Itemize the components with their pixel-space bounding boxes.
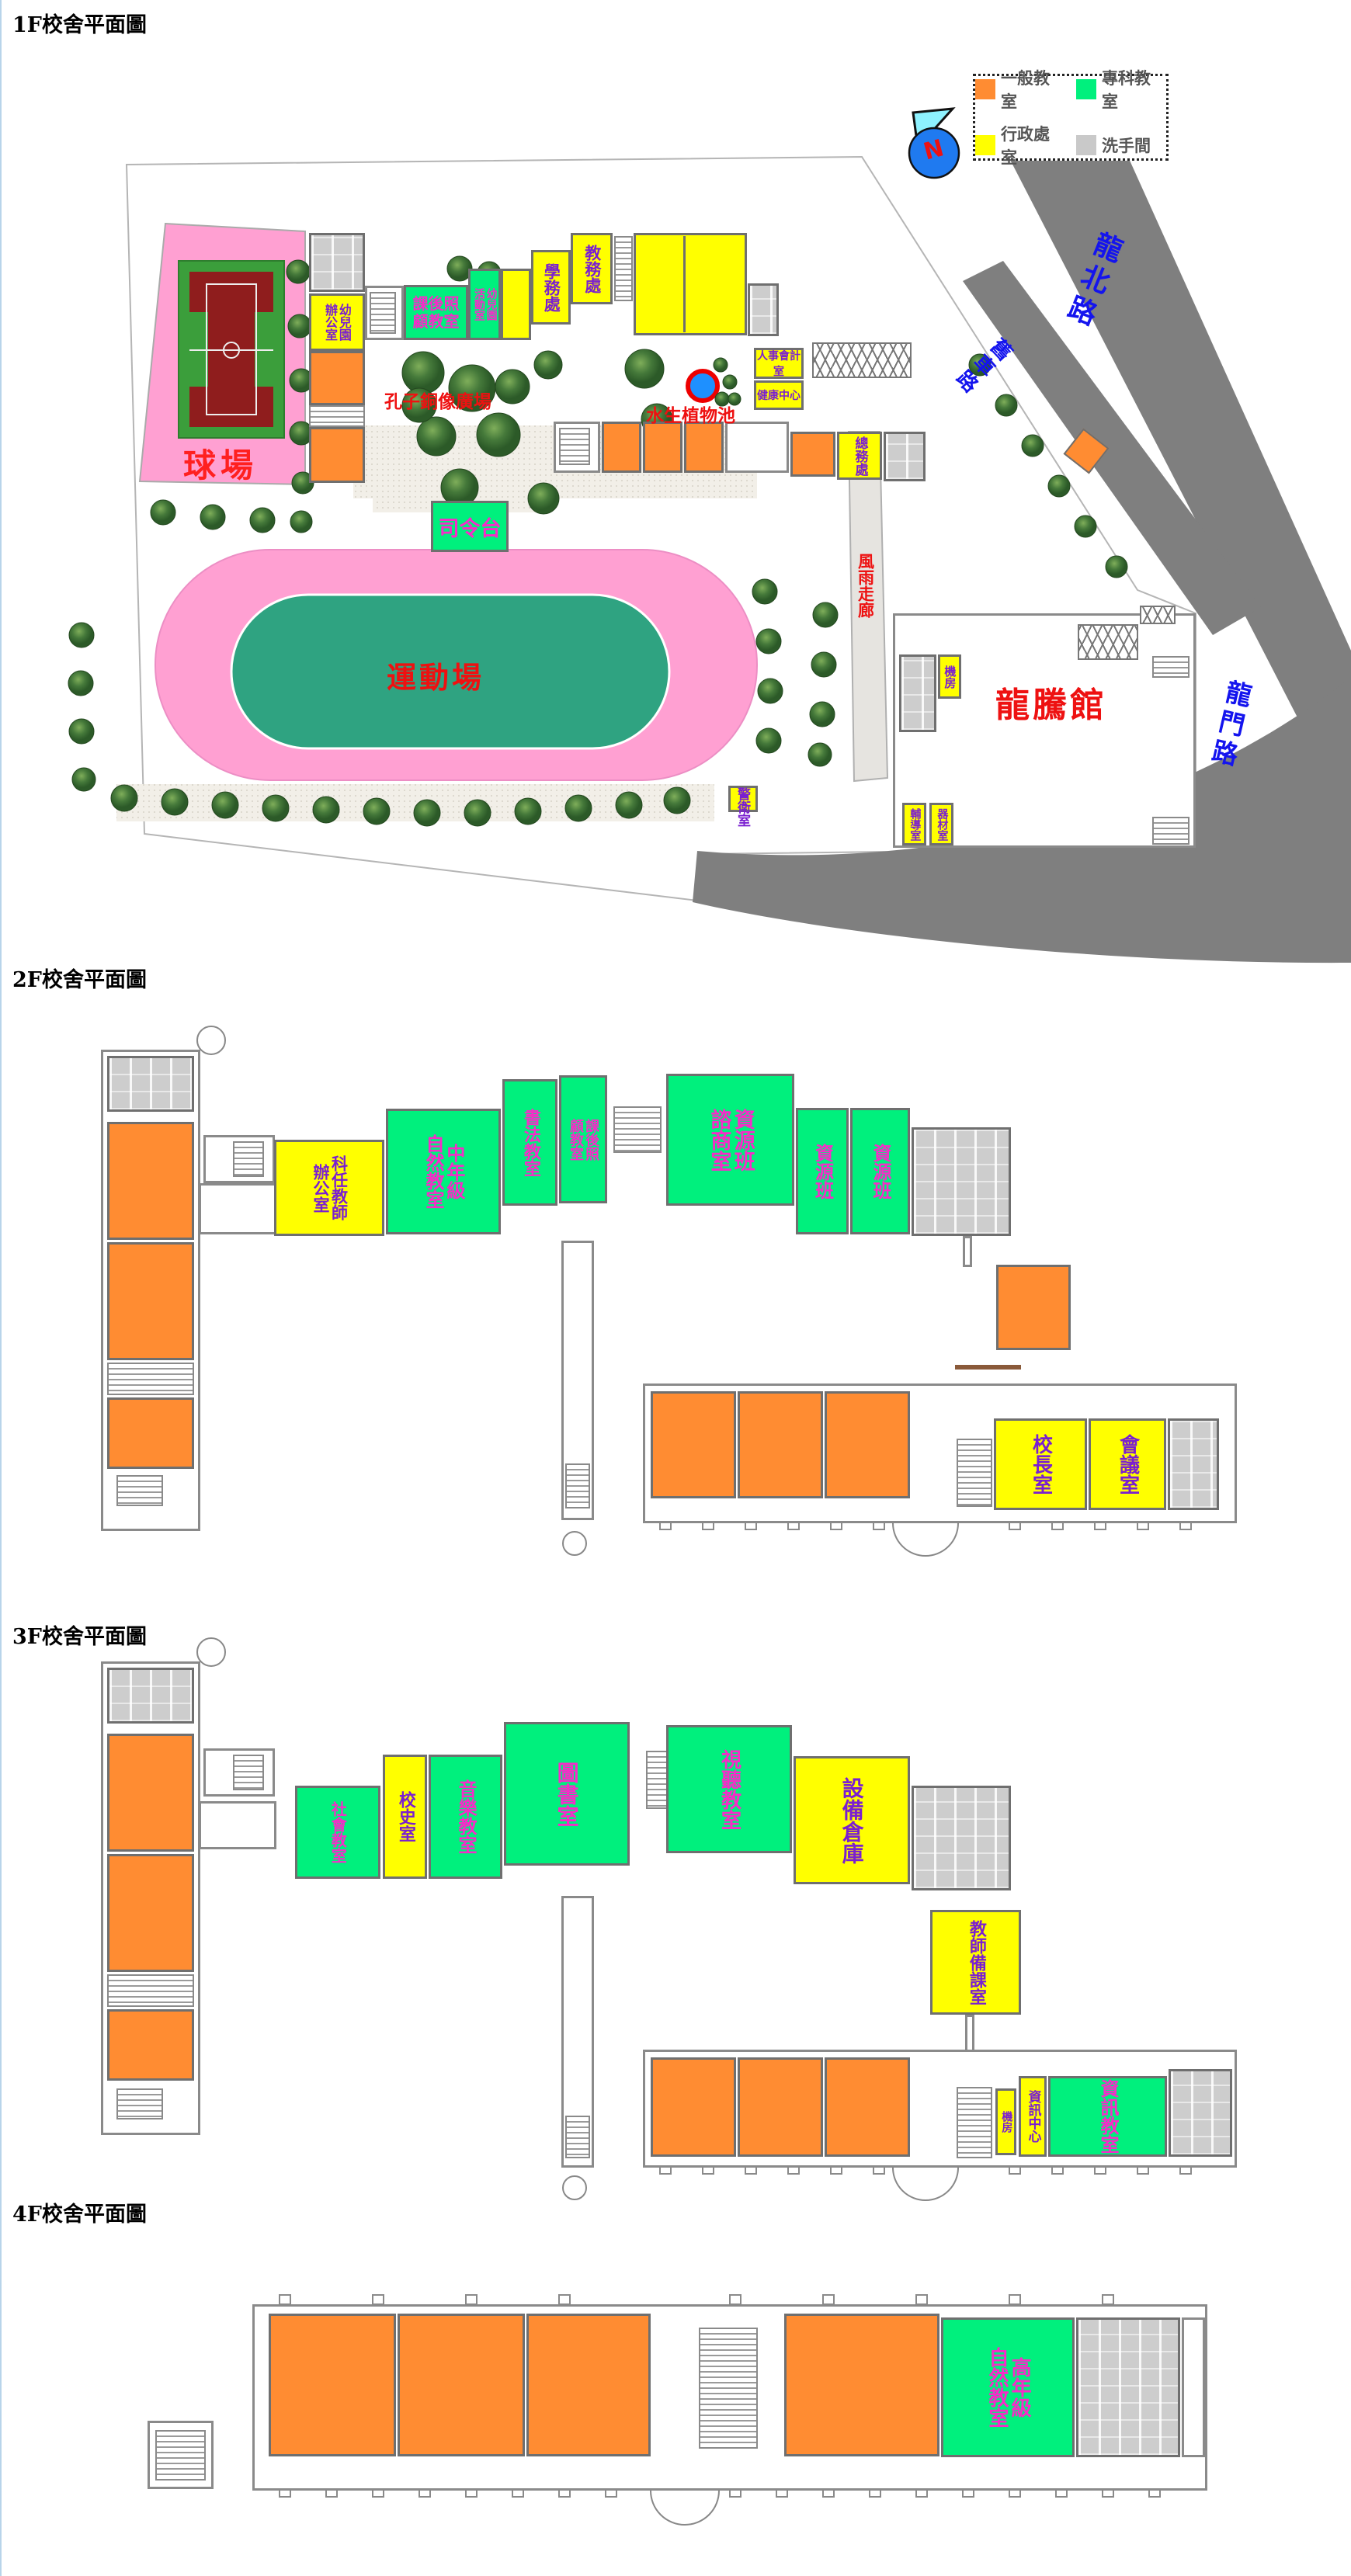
f1-classroom: [684, 422, 724, 473]
f1-kinder-activity-label: 幼兒園 活動室: [472, 288, 496, 321]
f1-bleachers-east: [812, 342, 912, 378]
stair-tower-2f: [197, 1026, 225, 1054]
f3-music-label: 音樂教室: [455, 1779, 476, 1854]
f3-classroom: [107, 2009, 194, 2081]
f2-classroom-east: [996, 1265, 1071, 1350]
f1-kindergarten-office-label: 幼兒園 辦公室: [323, 304, 351, 341]
f1-personnel-office: 人事會計室: [754, 348, 804, 379]
f1-gym-bleachers: [1078, 624, 1138, 660]
f1-health-center: 健康中心: [754, 380, 804, 410]
legend: 一般教室 專科教室 行政處室 洗手間: [973, 74, 1169, 161]
f1-south-stairs: [559, 428, 590, 465]
f1-gym-toilet: [899, 654, 936, 732]
legend-item-special: 專科教室: [1076, 66, 1166, 113]
f2-after-school-label: 課後照 顧教室: [568, 1119, 599, 1161]
f2-classroom: [738, 1391, 823, 1498]
f3-teacher-prep-label: 教師備課室: [966, 1920, 985, 2005]
f3-library-label: 圖書室: [554, 1762, 578, 1827]
f3-it-room-label: 資訊教室: [1097, 2079, 1118, 2154]
f3-it-room: 資訊教室: [1048, 2076, 1167, 2157]
f2-classroom: [107, 1242, 194, 1360]
f1-counseling-label: 輔導室: [908, 808, 921, 841]
floor3-title: 3F校舍平面圖: [12, 1620, 147, 1650]
f4-west-annex-stairs: [155, 2430, 206, 2481]
f2-classroom: [825, 1391, 910, 1498]
f1-after-school-label: 課後照 顧教室: [413, 295, 460, 331]
f2-resource-counsel-label: 資源班 諮商室: [707, 1109, 753, 1172]
f2-principal-label: 校長室: [1029, 1434, 1051, 1495]
entry-arc-4f: [651, 2491, 719, 2525]
f2-principal-office: 校長室: [994, 1418, 1087, 1510]
legend-label-restroom: 洗手間: [1102, 134, 1151, 157]
f2-after-school-room: 課後照 顧教室: [559, 1075, 607, 1203]
f2-west-connector: [199, 1183, 276, 1234]
f2-classroom: [651, 1391, 736, 1498]
f3-classroom: [825, 2057, 910, 2157]
map-background: [0, 0, 1351, 2576]
f1-admin-block: [634, 233, 747, 335]
f2-west-stairs-lower: [116, 1475, 163, 1506]
f1-machine-room: 機房: [938, 654, 961, 699]
f2-east-connector: [963, 1236, 972, 1267]
f3-connector-stairs: [233, 1755, 264, 1790]
pond-shape: [688, 371, 717, 401]
f1-health-label: 健康中心: [757, 387, 801, 403]
f1-admin-room: [501, 269, 531, 340]
f2-conference-label: 會議室: [1116, 1434, 1138, 1495]
f3-machine-label: 機房: [1000, 2111, 1012, 2133]
legend-swatch-restroom: [1076, 135, 1096, 155]
f4-classroom: [269, 2314, 396, 2456]
f3-west-stairs: [107, 1974, 194, 2007]
f1-equipment-room: 器材室: [929, 803, 953, 845]
f3-music-room: 音樂教室: [429, 1755, 502, 1879]
f1-sports-field-label: 運動場: [387, 654, 484, 696]
f1-counseling-room: 輔導室: [902, 803, 926, 845]
f4-classroom: [398, 2314, 525, 2456]
f1-toilet-west: [309, 233, 365, 292]
f3-av-label: 視聽教室: [717, 1749, 740, 1830]
f4-classroom: [784, 2314, 939, 2456]
floor1-title: 1F校舍平面圖: [12, 8, 147, 38]
f1-gym-box: [1140, 606, 1176, 624]
f3-west-stairs-lower: [116, 2088, 163, 2119]
legend-swatch-admin: [975, 135, 995, 155]
f2-calligraphy-room: 書法教室: [502, 1079, 557, 1206]
f1-classroom: [602, 422, 641, 473]
floor2-title: 2F校舍平面圖: [12, 963, 147, 993]
f4-senior-science-room: 高年級 自然教室: [941, 2317, 1075, 2457]
f4-classroom: [526, 2314, 651, 2456]
f2-resource-b-label: 資源班: [870, 1144, 891, 1199]
legend-swatch-general: [975, 79, 995, 99]
f2-subject-teacher-office: 科任教師 辦公室: [274, 1140, 384, 1236]
f1-mid-stairs: [614, 236, 633, 301]
f1-kindergarten-office: 幼兒園 辦公室: [309, 293, 365, 351]
f2-resource-a-label: 資源班: [812, 1144, 833, 1199]
f1-general-affairs-office: 總務處: [837, 432, 882, 480]
f3-social-room: 社會教室: [295, 1786, 380, 1879]
f3-toilet-south: [1169, 2069, 1232, 2157]
legend-label-special: 專科教室: [1102, 66, 1166, 113]
stair-tower-3f: [197, 1638, 225, 1666]
f2-resource-counsel-room: 資源班 諮商室: [666, 1074, 794, 1206]
f1-student-affairs-office: 學務處: [531, 250, 571, 325]
f3-teacher-prep-room: 教師備課室: [930, 1910, 1021, 2015]
f1-utility-room: [725, 422, 789, 473]
f1-student-affairs-label: 學務處: [542, 263, 561, 312]
f1-classroom: [309, 351, 365, 405]
f2-west-stairs: [107, 1363, 194, 1395]
f1-stage: 司令台: [431, 501, 509, 552]
f1-machine-label: 機房: [943, 665, 957, 689]
f3-machine-room: 機房: [995, 2088, 1016, 2155]
f1-pond-label: 水生植物池: [646, 401, 735, 427]
f2-brown-wall: [955, 1365, 1021, 1370]
campus-map-page: 1F校舍平面圖 2F校舍平面圖 3F校舍平面圖 4F校舍平面圖 一般教室 專科教…: [0, 0, 1351, 2576]
f2-resource-room-b: 資源班: [850, 1108, 910, 1234]
f4-east-room: [1182, 2317, 1205, 2457]
f1-classroom: [790, 432, 835, 477]
f3-av-room: 視聽教室: [666, 1725, 792, 1853]
f2-classroom: [107, 1122, 194, 1240]
f3-east-connector: [965, 2015, 974, 2052]
f1-guard-label: 警衛室: [735, 787, 749, 865]
f1-confucius-label: 孔子銅像廣場: [384, 387, 491, 413]
f2-mid-science-room: 中年級 自然教室: [386, 1109, 501, 1234]
legend-item-general: 一般教室: [975, 66, 1065, 113]
f3-corridor-stairs: [565, 2116, 590, 2158]
f4-senior-science-label: 高年級 自然教室: [985, 2347, 1030, 2428]
f2-corridor-stairs: [565, 1463, 590, 1508]
f3-it-center-label: 資訊中心: [1025, 2090, 1040, 2143]
f2-classroom: [107, 1397, 194, 1469]
f3-toilet-east: [912, 1786, 1011, 1890]
f3-equipment-storage-label: 設備倉庫: [839, 1777, 863, 1864]
f2-subject-teacher-label: 科任教師 辦公室: [311, 1155, 347, 1220]
f2-toilet-east: [912, 1127, 1011, 1236]
legend-label-general: 一般教室: [1001, 66, 1065, 113]
legend-item-admin: 行政處室: [975, 122, 1065, 168]
f1-equipment-label: 器材室: [936, 808, 948, 841]
f1-north-stairs: [370, 292, 396, 334]
stair-bay-2f: [563, 1532, 586, 1555]
f1-ball-court-label: 球場: [183, 439, 258, 487]
floor4-title: 4F校舍平面圖: [12, 2197, 147, 2227]
f1-rain-corridor-label: 風雨走廊: [856, 553, 874, 661]
f1-kinder-activity-room: 幼兒園 活動室: [468, 269, 501, 340]
f1-after-school-room: 課後照 顧教室: [404, 285, 468, 340]
f3-it-center: 資訊中心: [1019, 2076, 1047, 2157]
f2-conference-room: 會議室: [1089, 1418, 1166, 1510]
f3-classroom: [107, 1734, 194, 1852]
f1-admin-block-divider: [683, 236, 686, 332]
f2-elevator-stairs: [957, 1439, 992, 1507]
legend-label-admin: 行政處室: [1001, 122, 1065, 168]
f1-gym-stairs-bottom: [1152, 817, 1190, 845]
f2-mid-science-label: 中年級 自然教室: [422, 1134, 464, 1209]
f3-toilet-west: [107, 1668, 194, 1724]
f1-general-affairs-label: 總務處: [852, 436, 867, 476]
f3-equipment-storage: 設備倉庫: [794, 1756, 910, 1884]
f3-library: 圖書室: [504, 1722, 630, 1866]
f1-academic-affairs-label: 教務處: [582, 245, 601, 293]
f1-classroom: [309, 427, 365, 483]
f1-toilet-east: [884, 432, 926, 481]
f3-mid-stairs: [646, 1751, 668, 1809]
f2-toilet-south: [1168, 1418, 1219, 1510]
f4-central-stairs: [699, 2328, 758, 2449]
f3-elevator-stairs: [957, 2087, 992, 2158]
f1-stage-label: 司令台: [439, 512, 502, 542]
f3-school-history-room: 校史室: [383, 1755, 427, 1879]
legend-swatch-special: [1076, 79, 1096, 99]
entry-arc-2f: [893, 1523, 958, 1556]
f2-calligraphy-label: 書法教室: [520, 1109, 540, 1177]
f2-connector-stairs: [233, 1141, 264, 1177]
entry-arc-3f: [893, 2168, 958, 2200]
f1-academic-affairs-office: 教務處: [571, 233, 613, 304]
f1-gym-stairs-top: [1152, 656, 1190, 678]
f3-classroom: [107, 1854, 194, 1972]
f4-toilet: [1076, 2317, 1180, 2457]
f1-west-stairs: [309, 405, 365, 427]
f3-school-history-label: 校史室: [395, 1791, 415, 1842]
f2-toilet-west: [107, 1056, 194, 1112]
f2-resource-room-a: 資源班: [796, 1108, 849, 1234]
f2-mid-stairs: [613, 1106, 662, 1153]
f3-classroom: [738, 2057, 823, 2157]
f1-classroom: [643, 422, 682, 473]
f1-personnel-label: 人事會計室: [756, 348, 801, 379]
stair-bay-3f: [563, 2176, 586, 2199]
f3-classroom: [651, 2057, 736, 2157]
f1-gym-label: 龍騰館: [995, 677, 1107, 727]
f3-social-label: 社會教室: [329, 1801, 346, 1863]
legend-item-restroom: 洗手間: [1076, 122, 1166, 168]
f3-west-connector: [199, 1801, 276, 1849]
f1-toilet-north: [748, 283, 779, 336]
